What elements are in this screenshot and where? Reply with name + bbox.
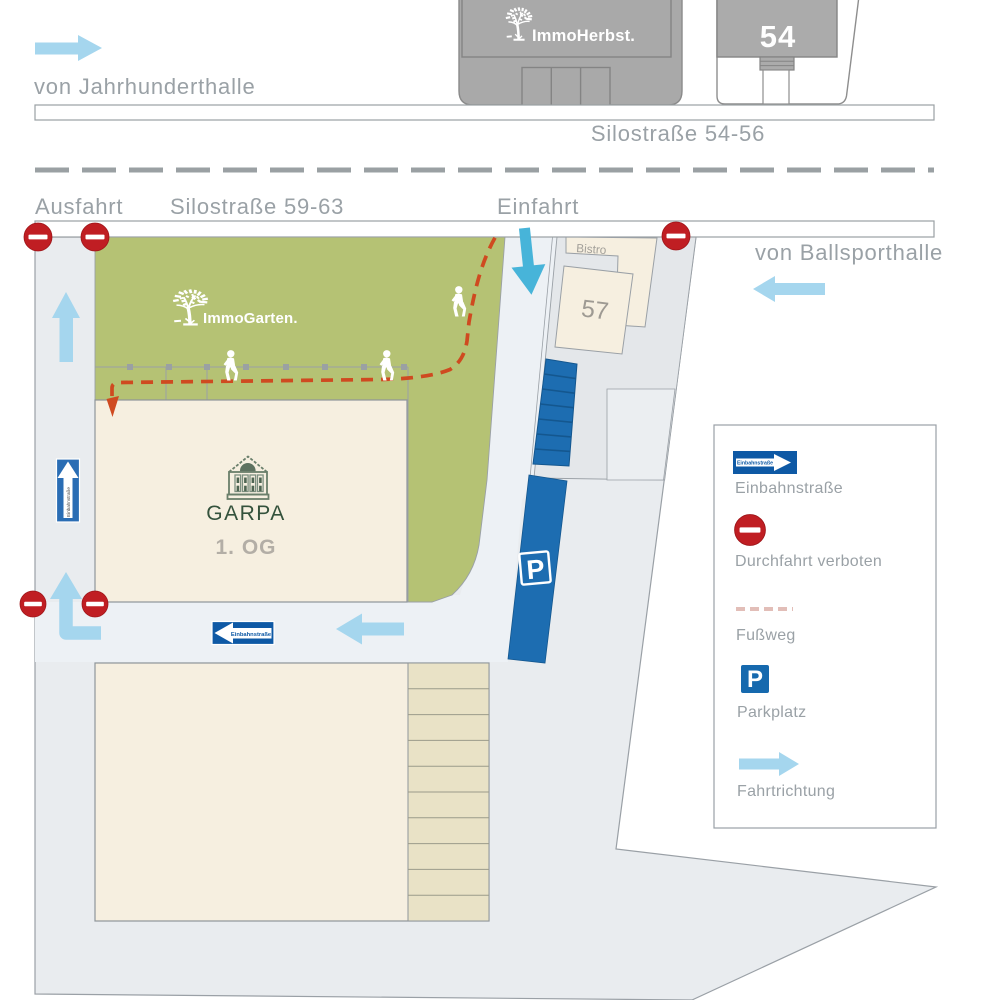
svg-text:Silostraße 59-63: Silostraße 59-63 (170, 194, 344, 219)
svg-text:Silostraße 54-56: Silostraße 54-56 (591, 121, 765, 146)
svg-text:Durchfahrt verboten: Durchfahrt verboten (735, 553, 882, 570)
svg-text:Einfahrt: Einfahrt (497, 194, 579, 219)
svg-text:Einbahnstraße: Einbahnstraße (231, 632, 272, 638)
svg-text:Parkplatz: Parkplatz (737, 704, 806, 721)
svg-text:Einbahnstraße: Einbahnstraße (737, 461, 773, 467)
svg-text:Fußweg: Fußweg (736, 627, 796, 644)
svg-text:von Jahrhunderthalle: von Jahrhunderthalle (34, 74, 255, 99)
svg-text:von Ballsporthalle: von Ballsporthalle (755, 240, 943, 265)
svg-text:GARPA: GARPA (206, 502, 285, 525)
svg-text:ImmoGarten.: ImmoGarten. (203, 310, 298, 327)
svg-text:Einbahnstraße: Einbahnstraße (735, 480, 843, 497)
svg-text:P: P (747, 666, 763, 693)
svg-text:1. OG: 1. OG (215, 536, 276, 559)
svg-text:Bistro: Bistro (576, 241, 607, 257)
svg-text:54: 54 (760, 19, 796, 54)
svg-text:ImmoHerbst.: ImmoHerbst. (532, 27, 635, 45)
svg-text:Einbahnstraße: Einbahnstraße (66, 487, 71, 517)
svg-text:Fahrtrichtung: Fahrtrichtung (737, 783, 835, 800)
svg-text:P: P (525, 554, 546, 585)
svg-text:57: 57 (580, 295, 610, 325)
svg-text:Ausfahrt: Ausfahrt (35, 194, 123, 219)
